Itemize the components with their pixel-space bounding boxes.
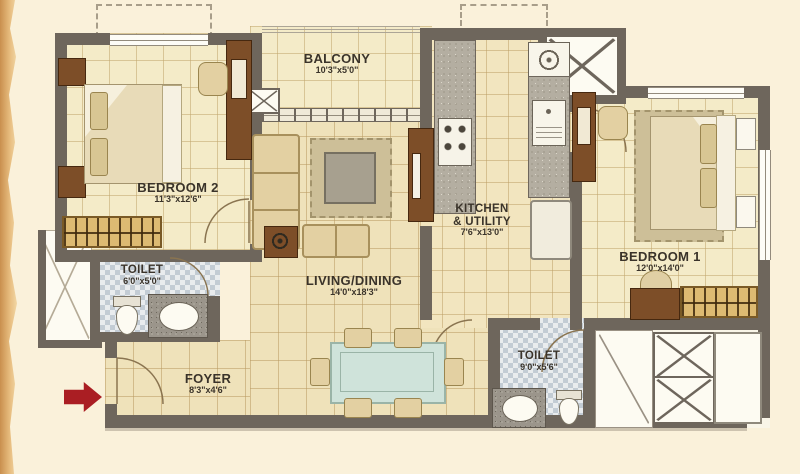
kitchen-label: KITCHEN & UTILITY 7'6"x13'0" [436, 203, 528, 238]
wall [38, 230, 46, 348]
side-table [264, 226, 298, 258]
sink-faucet [546, 109, 551, 114]
balcony-sliding-door [262, 108, 420, 122]
wall [420, 226, 432, 320]
wash-basin [502, 395, 538, 422]
room-dims: 9'0"x5'6" [498, 363, 580, 373]
wall [420, 28, 432, 120]
room-name: FOYER [158, 372, 258, 386]
entrance-arrow-icon [64, 382, 102, 412]
plant-icon [270, 231, 290, 251]
bedroom2-label: BEDROOM 2 11'3"x12'6" [108, 181, 248, 205]
room-name: TOILET [498, 350, 580, 363]
sink-drainboard [536, 127, 562, 142]
wall [55, 250, 262, 262]
room-dims: 8'3"x4'6" [158, 386, 258, 396]
coffee-table [324, 152, 376, 204]
desk-top [577, 107, 591, 145]
wall [488, 318, 540, 330]
wall [208, 250, 220, 260]
torn-paper-edge [0, 0, 22, 474]
stove-cooktop [438, 118, 472, 166]
dining-table [330, 342, 446, 404]
pillow [90, 92, 108, 130]
wall [420, 28, 538, 40]
sofa-two-seat [302, 224, 370, 258]
balcony-railing [262, 26, 420, 34]
room-dims: 7'6"x13'0" [436, 228, 528, 238]
desk-chair [598, 106, 628, 140]
bedroom1-wardrobe [680, 286, 758, 318]
bedroom2-door-arc [205, 199, 250, 244]
desk-top [231, 59, 247, 99]
wall [208, 296, 220, 342]
room-dims: 14'0"x18'3" [284, 288, 424, 298]
utility-box [714, 332, 762, 424]
shower-area [595, 330, 653, 428]
wall [105, 342, 117, 358]
room-name: LIVING/DINING [284, 274, 424, 288]
toilet2-vanity [492, 388, 546, 428]
nightstand [736, 118, 756, 150]
nightstand [736, 196, 756, 228]
dining-chair [394, 328, 422, 348]
bed-sheet [716, 115, 736, 231]
balcony-label: BALCONY 10'3"x5'0" [272, 52, 402, 76]
wash-basin [159, 302, 199, 331]
room-dims: 11'3"x12'6" [108, 195, 248, 205]
toilet1-vanity [148, 294, 208, 338]
room-dims: 6'0"x5'0" [96, 277, 188, 287]
room-name: TOILET [96, 264, 188, 277]
room-name: BALCONY [272, 52, 402, 66]
dining-chair [310, 358, 330, 386]
toilet1-label: TOILET 6'0"x5'0" [96, 264, 188, 287]
room-dims: 12'0"x14'0" [590, 264, 730, 274]
bedroom2-desk [226, 40, 252, 160]
pillow [700, 168, 717, 208]
wall [55, 33, 110, 45]
wall [38, 340, 102, 348]
dining-chair [444, 358, 464, 386]
desk-chair [198, 62, 228, 96]
pillow [90, 138, 108, 176]
duct-shaft-bottom-1 [653, 332, 715, 380]
pillow [700, 124, 717, 164]
wall [583, 330, 595, 428]
window [110, 34, 208, 46]
bed-sheet [162, 85, 182, 183]
bedroom2-wardrobe [62, 216, 162, 248]
foyer-label: FOYER 8'3"x4'6" [158, 372, 258, 396]
dining-chair [394, 398, 422, 418]
bedroom1-label: BEDROOM 1 12'0"x14'0" [590, 250, 730, 274]
refrigerator [530, 200, 572, 260]
tv-unit [408, 128, 434, 222]
shaft-cross-icon [655, 378, 713, 422]
diagonal-marker [596, 331, 652, 427]
bedroom1-dresser [630, 288, 680, 320]
dining-chair [344, 398, 372, 418]
bedroom1-desk [572, 92, 596, 182]
nightstand [58, 166, 86, 198]
window [759, 150, 771, 260]
entrance-door-arc [117, 358, 163, 404]
toilet2-label: TOILET 9'0"x5'6" [498, 350, 580, 373]
dining-chair [344, 328, 372, 348]
room-dims: 10'3"x5'0" [272, 66, 402, 76]
washing-machine [528, 42, 570, 78]
living-label: LIVING/DINING 14'0"x18'3" [284, 274, 424, 298]
room-name: BEDROOM 1 [590, 250, 730, 264]
nightstand [58, 58, 86, 86]
tv-screen [412, 153, 421, 199]
window [648, 87, 744, 99]
shaft-cross-icon [655, 334, 713, 378]
room-name: KITCHEN [436, 203, 528, 216]
shaft-cross-icon [250, 90, 278, 112]
balcony-duct-box [248, 88, 280, 114]
kitchen-sink [532, 100, 566, 146]
room-name: BEDROOM 2 [108, 181, 248, 195]
duct-shaft-bottom-2 [653, 376, 715, 424]
dining-table-inner [340, 352, 434, 392]
floor-plan-canvas: BALCONY 10'3"x5'0" BEDROOM 2 11'3"x12'6"… [0, 0, 800, 474]
